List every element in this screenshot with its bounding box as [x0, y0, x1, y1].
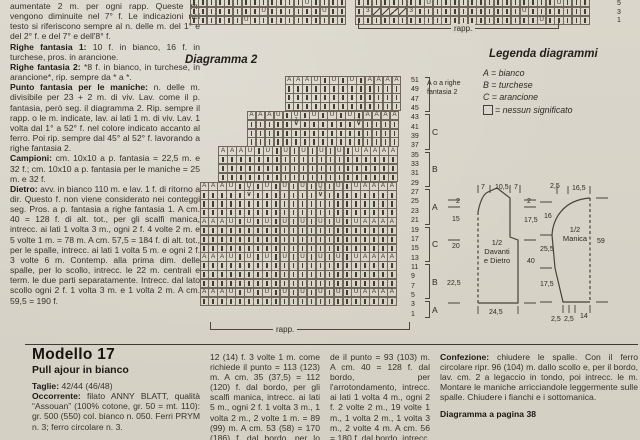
front-dim-right-1: 2: [527, 198, 531, 205]
front-dim-right-2: 17,5: [524, 217, 538, 224]
legend-key: A =: [483, 67, 496, 79]
front-dim-top-2: 10,5: [495, 184, 509, 191]
row-number: 11: [411, 263, 419, 272]
section-divider: [25, 344, 638, 345]
row-number: 45: [411, 104, 419, 113]
row-number: 29: [411, 179, 419, 188]
row-number: 41: [411, 123, 419, 132]
diagram1-row-numbers: 531: [617, 0, 621, 26]
row-number: 51: [411, 76, 419, 85]
section-brace: [425, 227, 430, 262]
legend-item: A = bianco: [483, 67, 633, 79]
row-number: 5: [411, 291, 419, 300]
model-info-paragraph: Taglie: 42/44 (46/48): [32, 381, 200, 391]
row-number: 3: [617, 9, 621, 18]
model-title: Modello 17: [32, 350, 200, 360]
row-number: 5: [617, 0, 621, 9]
row-number: 15: [411, 244, 419, 253]
instructions-text: de il punto = 93 (103) m. A cm. 40 = 128…: [330, 352, 430, 440]
diagram1-rapp-label: rapp.: [451, 24, 475, 33]
instruction-paragraph: aumentate 2 m. per ogni rapp. Queste m. …: [10, 1, 200, 42]
legend-key: C =: [483, 91, 497, 103]
row-number: 21: [411, 216, 419, 225]
sleeve-dim-bottom-1: 2,5: [551, 316, 561, 323]
row-number: 35: [411, 151, 419, 160]
section-brace: [425, 301, 430, 318]
instruction-paragraph: Punto fantasia per le maniche: n. delle …: [10, 82, 200, 153]
empty-square-icon: [483, 105, 493, 115]
front-piece-name: 1/2 Davanti e Dietro: [478, 238, 516, 265]
row-number: 37: [411, 141, 419, 150]
row-number: 1: [617, 17, 621, 26]
section-brace: [425, 114, 430, 149]
diagram2-rapp-bracket: rapp.: [210, 322, 410, 330]
instruction-paragraph: Campioni: cm. 10x10 a p. fantasia = 22,5…: [10, 153, 200, 183]
section-letter: A: [432, 305, 438, 315]
confezione-lead: Confezione:: [440, 352, 489, 362]
legend-value: bianco: [496, 67, 524, 79]
instruction-paragraph: Righe fantasia 1: 10 f. in bianco, 16 f.…: [10, 42, 200, 62]
front-dim-left-1: 2: [456, 198, 460, 205]
sleeve-dim-left-3: 17,5: [540, 281, 554, 288]
legend-item: = nessun significato: [483, 104, 633, 116]
instruction-paragraph: Righe fantasia 2: *8 f. in bianco, in tu…: [10, 62, 200, 82]
magazine-page: { "left_column": { "paragraphs": [ {"lea…: [0, 0, 640, 440]
instructions-text: 12 (14) f. 3 volte 1 m. come richiede il…: [210, 352, 320, 440]
section-letter: C: [432, 127, 438, 137]
section-brace: [425, 152, 430, 187]
row-number: 43: [411, 113, 419, 122]
confezione-paragraph: Confezione: chiudere le spalle. Con il f…: [440, 352, 638, 402]
diagram2-title: Diagramma 2: [185, 54, 257, 66]
sleeve-dim-top-1: 2,5: [550, 183, 560, 190]
row-number: 49: [411, 85, 419, 94]
legend: Legenda diagrammi A = biancoB = turchese…: [483, 48, 633, 116]
section-letter: B: [432, 277, 438, 287]
model17-column-4: Confezione: chiudere le spalle. Con il f…: [440, 352, 638, 420]
sleeve-dim-top-2: 16,5: [572, 185, 586, 192]
row-number: 9: [411, 272, 419, 281]
sleeve-piece-name: 1/2 Manica: [560, 225, 590, 243]
front-dim-left-2: 15: [452, 216, 460, 223]
model17-column-3: de il punto = 93 (103) m. A cm. 40 = 128…: [330, 352, 430, 440]
diagram2-row-numbers: 5149474543413937353331292725232119171513…: [411, 76, 419, 319]
row-number: 19: [411, 226, 419, 235]
sleeve-outline: [552, 198, 590, 302]
chart-row: [200, 297, 401, 306]
row-number: 25: [411, 197, 419, 206]
legend-item: B = turchese: [483, 79, 633, 91]
section-letter: C: [432, 239, 438, 249]
row-number: 27: [411, 188, 419, 197]
row-number: 1: [411, 310, 419, 319]
legend-key: B =: [483, 79, 496, 91]
row-number: 31: [411, 169, 419, 178]
front-dim-left-4: 22,5: [447, 280, 461, 287]
front-dim-right-3: 40: [527, 258, 535, 265]
front-dim-bottom: 24,5: [489, 309, 503, 316]
legend-value: arancione: [497, 91, 538, 103]
chart-cell: [387, 297, 396, 306]
section-note: A o a righefantasia 2: [427, 80, 487, 97]
legend-value: turchese: [496, 79, 532, 91]
left-column: aumentate 2 m. per ogni rapp. Queste m. …: [10, 1, 200, 306]
model-info-paragraphs: Taglie: 42/44 (46/48)Occorrente: filato …: [32, 381, 200, 431]
chart-cell: [580, 16, 589, 25]
row-number: 7: [411, 282, 419, 291]
sleeve-dim-bottom-2: 2,5: [564, 316, 574, 323]
model17-column-1: Modello 17 Pull ajour in bianco Taglie: …: [32, 350, 200, 432]
sleeve-dim-right: 59: [597, 238, 605, 245]
section-letter: B: [432, 164, 438, 174]
diagram-page-reference: Diagramma a pagina 38: [440, 409, 638, 419]
row-number: 23: [411, 207, 419, 216]
sleeve-dim-bottom-3: 14: [580, 313, 588, 320]
section-letter: A: [432, 202, 438, 212]
section-brace: [425, 264, 430, 299]
row-number: 3: [411, 300, 419, 309]
legend-value: nessun significato: [500, 104, 572, 116]
front-dim-left-3: 20: [452, 243, 460, 250]
front-dim-top-3: 7: [514, 184, 518, 191]
model-subtitle: Pull ajour in bianco: [32, 365, 200, 375]
diagram2-rapp-label: rapp.: [273, 325, 297, 334]
schematics-drawing: [440, 180, 640, 346]
model-info-paragraph: Occorrente: filato ANNY BLATT, qualità “…: [32, 391, 200, 431]
row-number: 13: [411, 254, 419, 263]
sleeve-dim-left-1: 16: [544, 213, 552, 220]
front-dim-top-1: 7: [481, 184, 485, 191]
legend-items: A = biancoB = turcheseC = arancione= nes…: [483, 67, 633, 116]
diagram1-rapp-bracket: rapp.: [358, 20, 559, 29]
instruction-paragraph: Dietro: avv. in bianco 110 m. e lav. 1 f…: [10, 184, 200, 306]
row-number: 39: [411, 132, 419, 141]
row-number: 33: [411, 160, 419, 169]
model17-column-2: 12 (14) f. 3 volte 1 m. come richiede il…: [210, 352, 320, 440]
sleeve-dim-left-2: 25,5: [540, 246, 554, 253]
row-number: 47: [411, 95, 419, 104]
section-brace: [425, 189, 430, 224]
row-number: 17: [411, 235, 419, 244]
legend-item: C = arancione: [483, 91, 633, 103]
knitting-chart-diagram2: [200, 76, 401, 306]
legend-title: Legenda diagrammi: [489, 48, 633, 60]
